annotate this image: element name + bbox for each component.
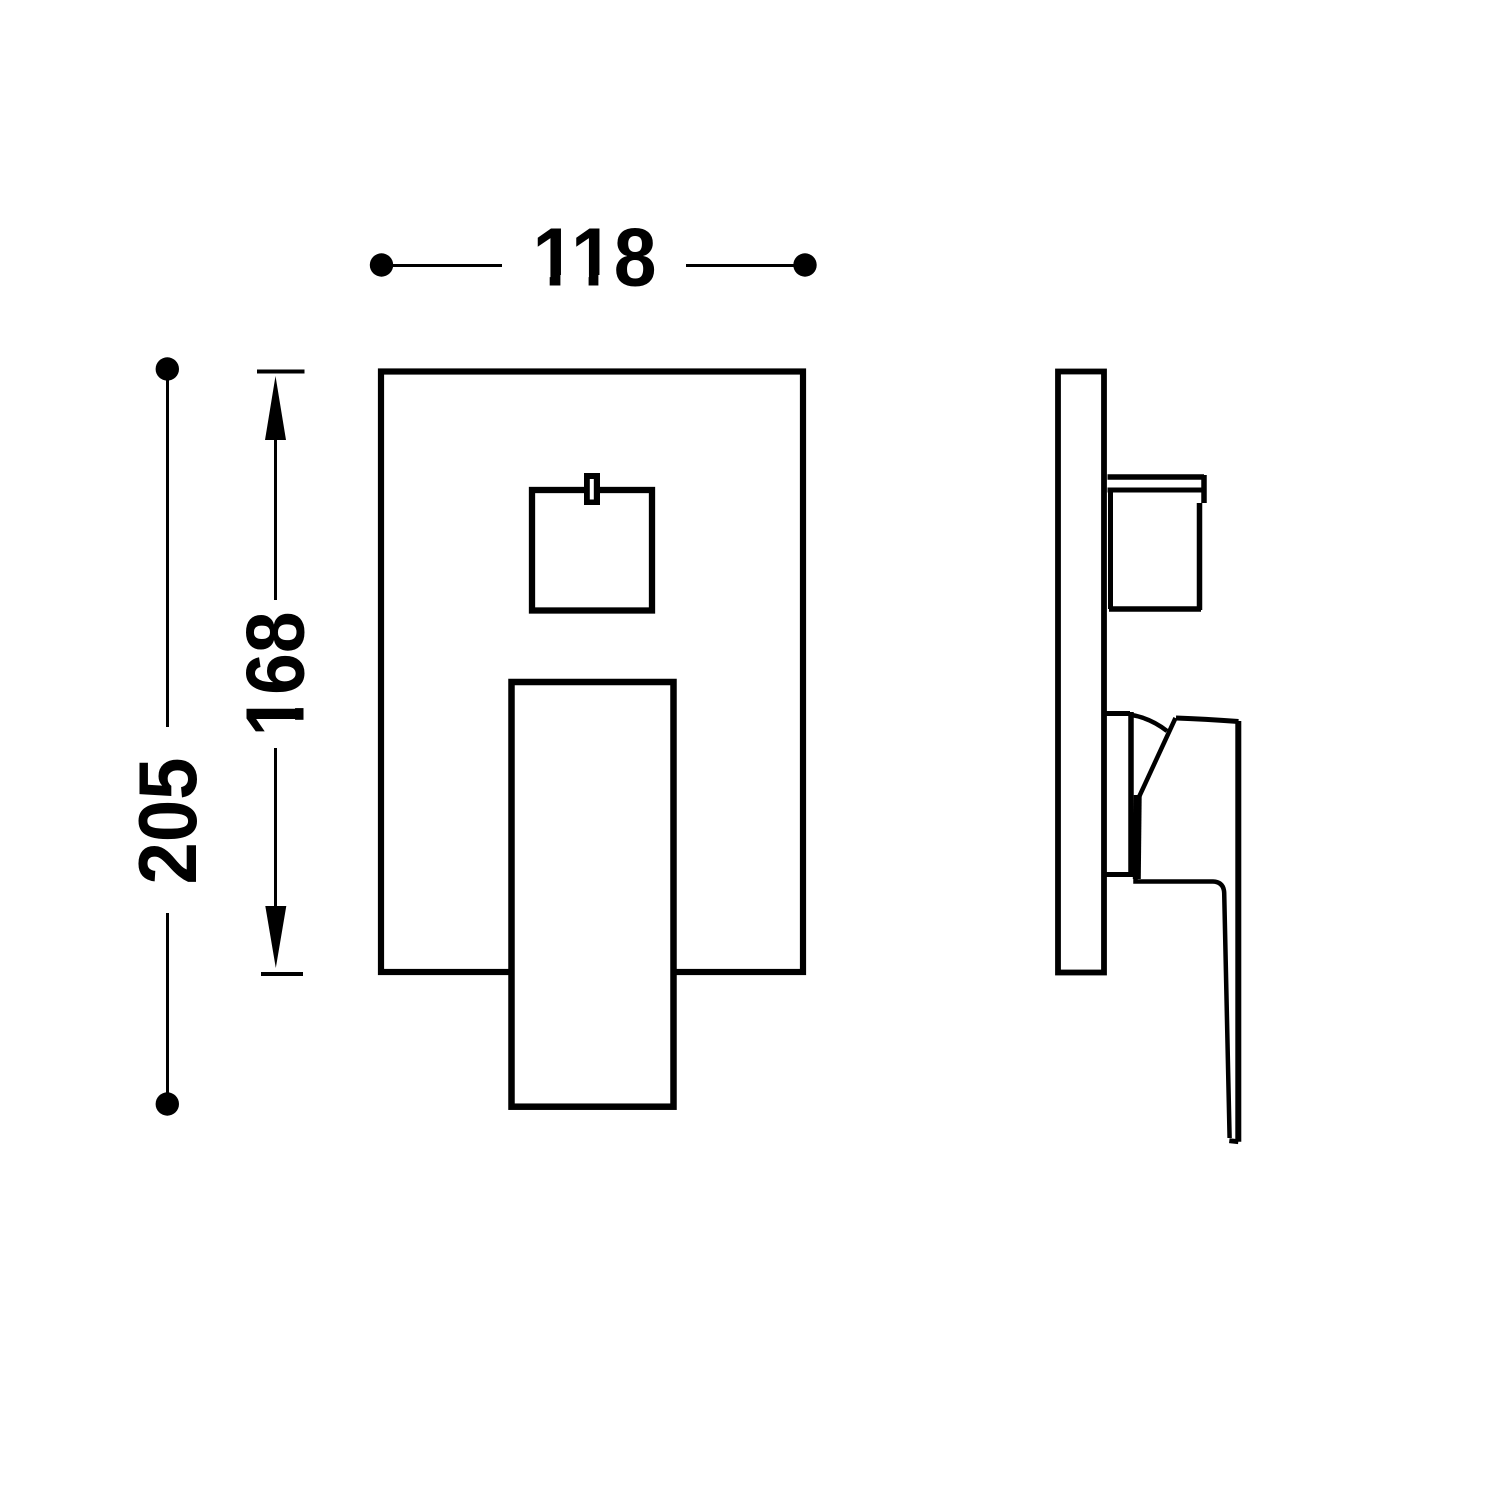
svg-text:118: 118 <box>533 210 657 303</box>
svg-text:205: 205 <box>121 758 214 885</box>
svg-text:168: 168 <box>228 612 321 737</box>
